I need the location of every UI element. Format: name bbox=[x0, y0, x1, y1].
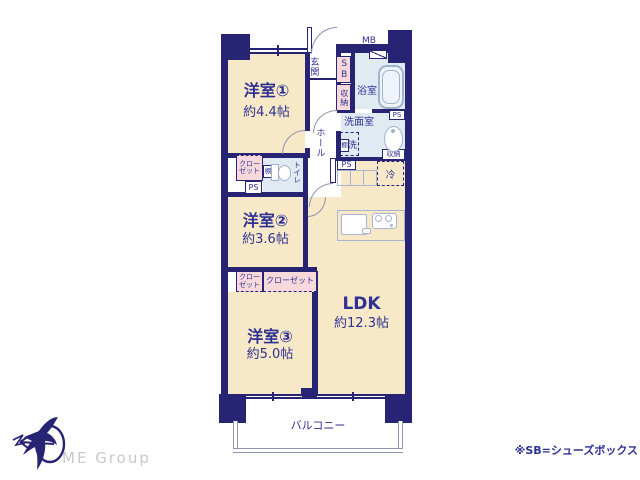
wall-room2-top bbox=[221, 192, 303, 197]
bathtub-inner bbox=[382, 70, 400, 104]
label-yoshitsu3-name: 洋室③ bbox=[228, 328, 312, 346]
label-ldk-name: LDK bbox=[318, 295, 405, 314]
floor-plan-canvas: クロー ゼット クロー ゼット クローゼット SB 収納 PS PS PS 棚 … bbox=[0, 0, 640, 480]
stove-burner-icon bbox=[375, 215, 382, 222]
meter-box bbox=[369, 50, 387, 59]
label-genkan: 玄関 bbox=[308, 57, 318, 77]
shoe-box: SB bbox=[336, 56, 351, 83]
label-yoshitsu3-size: 約5.0帖 bbox=[228, 348, 312, 363]
washing-machine-box: 洗 bbox=[340, 132, 359, 156]
window-tick bbox=[272, 392, 274, 401]
closet-label: クロー ゼット bbox=[239, 274, 260, 289]
label-ldk-size: 約12.3帖 bbox=[318, 317, 405, 332]
label-hall: ホール bbox=[314, 128, 324, 158]
toilet-bowl-icon bbox=[278, 165, 291, 181]
balcony-rail-left bbox=[233, 421, 238, 451]
entrance-door-arc bbox=[311, 27, 337, 54]
label-washroom: 洗面室 bbox=[344, 117, 374, 129]
label-yoshitsu1-name: 洋室① bbox=[228, 82, 305, 100]
stove-burner-icon bbox=[385, 215, 392, 222]
closet-yoshitsu3-wide: クローゼット bbox=[263, 271, 317, 292]
storage-label: 収納 bbox=[339, 89, 347, 107]
logo-text: ME Group bbox=[62, 450, 151, 467]
label-toilet: トイレ bbox=[292, 161, 301, 184]
ldk-door-leaf bbox=[330, 158, 336, 183]
ps-shaft-kitchen: PS bbox=[337, 160, 356, 170]
closet-yoshitsu3-small: クロー ゼット bbox=[236, 271, 263, 292]
ps-label: PS bbox=[342, 161, 352, 169]
wall-toilet-east bbox=[303, 156, 308, 197]
ps-shaft-toilet: PS bbox=[245, 181, 262, 194]
shoe-box-label: SB bbox=[339, 59, 348, 81]
window-tick bbox=[352, 392, 354, 401]
sb-note: ※SB=シューズボックス bbox=[470, 445, 638, 458]
refrigerator-box: 冷 bbox=[377, 161, 404, 186]
label-yoshitsu2-size: 約3.6帖 bbox=[228, 233, 303, 248]
room-ldk-right bbox=[341, 161, 405, 394]
window-yoshitsu3-bottom bbox=[246, 394, 302, 399]
storage-label: 収納 bbox=[387, 151, 401, 158]
window-yoshitsu1-top bbox=[250, 48, 310, 54]
wall-right bbox=[405, 53, 412, 398]
ps-label: PS bbox=[393, 112, 402, 119]
window-ldk-bottom bbox=[317, 394, 385, 399]
kitchen-cabinet-row bbox=[337, 170, 377, 186]
window-tick bbox=[277, 45, 279, 56]
closet-label: クロー ゼット bbox=[239, 161, 260, 176]
label-yoshitsu2-name: 洋室② bbox=[228, 212, 303, 230]
label-bath: 浴室 bbox=[353, 85, 381, 98]
washbasin-faucet-icon bbox=[391, 129, 395, 133]
label-balcony: バルコニー bbox=[280, 419, 356, 433]
pillar-bottom-left bbox=[219, 394, 246, 423]
ps-shaft-right: PS bbox=[389, 110, 405, 120]
genkan-step-line bbox=[310, 78, 336, 80]
pillar-bottom-mid bbox=[301, 388, 317, 399]
wall-bath-west bbox=[351, 53, 355, 111]
pillar-bottom-right bbox=[385, 394, 412, 423]
label-yoshitsu1-size: 約4.4帖 bbox=[228, 106, 305, 121]
refrigerator-label: 冷 bbox=[386, 167, 396, 181]
washing-machine-label: 洗 bbox=[348, 138, 357, 151]
balcony-rail-bottom bbox=[233, 448, 403, 453]
kitchen-faucet-icon bbox=[362, 228, 371, 234]
closet-yoshitsu1: クロー ゼット bbox=[236, 155, 263, 181]
ps-label: PS bbox=[249, 184, 259, 192]
balcony-rail-right bbox=[398, 421, 403, 451]
closet-label: クローゼット bbox=[266, 277, 314, 285]
wall-left bbox=[221, 48, 228, 398]
stove-knob-icon bbox=[390, 224, 393, 227]
entrance-storage: 収納 bbox=[336, 84, 351, 111]
